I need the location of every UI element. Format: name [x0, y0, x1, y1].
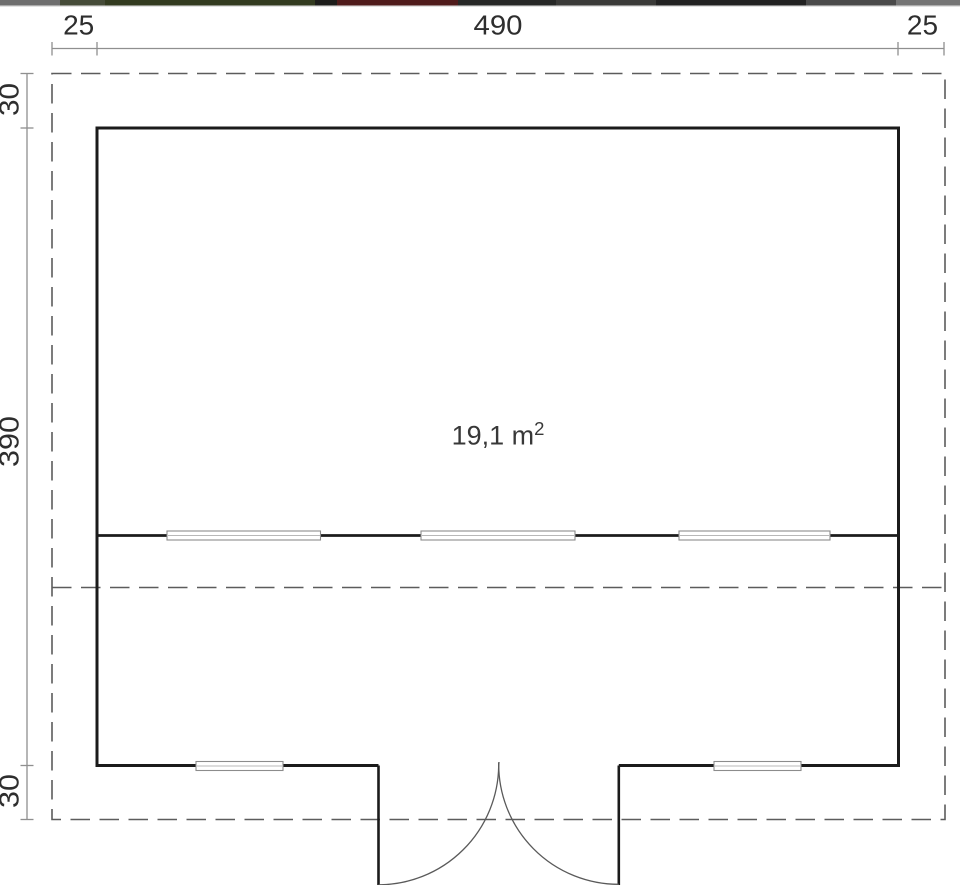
svg-text:390: 390	[0, 416, 25, 467]
svg-text:30: 30	[0, 83, 25, 116]
svg-text:19,1 m2: 19,1 m2	[452, 418, 545, 451]
svg-text:25: 25	[907, 10, 938, 41]
svg-text:490: 490	[474, 10, 523, 41]
svg-text:30: 30	[0, 774, 25, 808]
svg-text:25: 25	[63, 10, 94, 41]
